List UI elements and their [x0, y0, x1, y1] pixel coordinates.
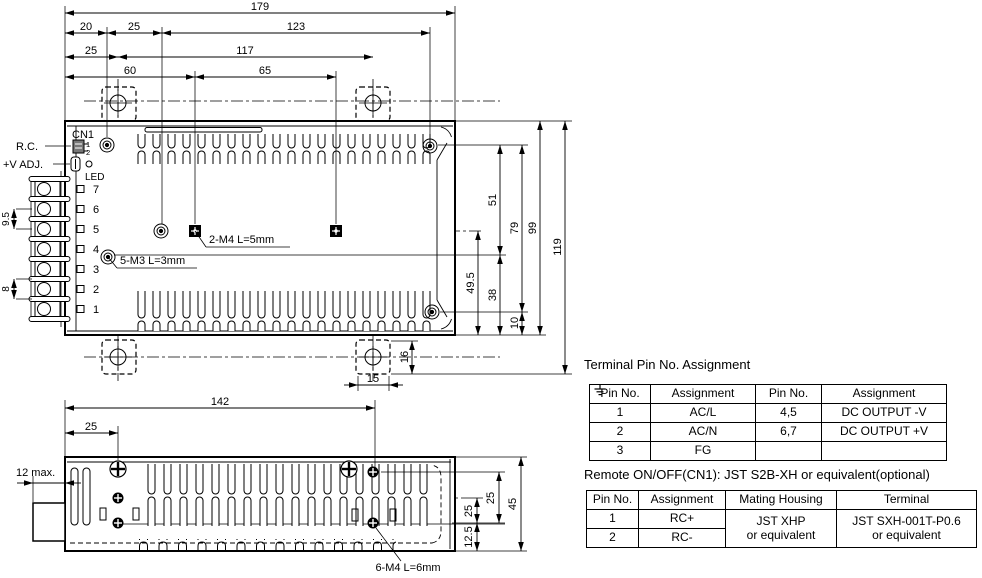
- col-header-assignment: Assignment: [822, 385, 947, 404]
- col-header-pin-no: Pin No.: [756, 385, 822, 404]
- remote-table-title: Remote ON/OFF(CN1): JST S2B-XH or equiva…: [584, 467, 930, 482]
- terminal-line1: JST SXH-001T-P0.6: [837, 515, 976, 529]
- table-row: 1 RC+ JST XHP or equivalent JST SXH-001T…: [587, 510, 977, 529]
- mating-housing-line2: or equivalent: [726, 529, 836, 543]
- col-header-terminal: Terminal: [837, 491, 977, 510]
- assignment-cell: FG: [651, 442, 756, 461]
- assignment-cell: AC/N: [651, 423, 756, 442]
- terminal-cell: JST SXH-001T-P0.6 or equivalent: [837, 510, 977, 548]
- pin-no-cell: 3: [590, 442, 651, 461]
- assignment-cell: AC/L: [651, 404, 756, 423]
- tables-panel: Terminal Pin No. Assignment Pin No. Assi…: [0, 0, 982, 578]
- assignment-cell: RC+: [639, 510, 726, 529]
- terminal-line2: or equivalent: [837, 529, 976, 543]
- assignment-cell: RC-: [639, 529, 726, 548]
- table-row: 1 AC/L 4,5 DC OUTPUT -V: [590, 404, 947, 423]
- terminal-assignment-table: Pin No. Assignment Pin No. Assignment 1 …: [589, 384, 947, 461]
- mechanical-drawing-page: 179 20 25 123 25 117 60 65 49.5 51 38 79…: [0, 0, 982, 578]
- col-header-assignment: Assignment: [639, 491, 726, 510]
- pin-no-cell: [756, 442, 822, 461]
- assignment-cell: DC OUTPUT -V: [822, 404, 947, 423]
- pin-no-cell: 6,7: [756, 423, 822, 442]
- terminal-table-title: Terminal Pin No. Assignment: [584, 357, 750, 372]
- pin-no-cell: 2: [590, 423, 651, 442]
- pin-no-cell: 1: [587, 510, 639, 529]
- assignment-cell: [822, 442, 947, 461]
- table-header-row: Pin No. Assignment Pin No. Assignment: [590, 385, 947, 404]
- assignment-cell: DC OUTPUT +V: [822, 423, 947, 442]
- col-header-mating-housing: Mating Housing: [726, 491, 837, 510]
- pin-no-cell: 1: [590, 404, 651, 423]
- pin-no-cell: 2: [587, 529, 639, 548]
- mating-housing-line1: JST XHP: [726, 515, 836, 529]
- col-header-assignment: Assignment: [651, 385, 756, 404]
- remote-on-off-table: Pin No. Assignment Mating Housing Termin…: [586, 490, 977, 548]
- earth-ground-icon: [593, 385, 607, 396]
- col-header-pin-no: Pin No.: [587, 491, 639, 510]
- table-row: 3 FG: [590, 442, 947, 461]
- mating-housing-cell: JST XHP or equivalent: [726, 510, 837, 548]
- table-row: 2 AC/N 6,7 DC OUTPUT +V: [590, 423, 947, 442]
- pin-no-cell: 4,5: [756, 404, 822, 423]
- table-header-row: Pin No. Assignment Mating Housing Termin…: [587, 491, 977, 510]
